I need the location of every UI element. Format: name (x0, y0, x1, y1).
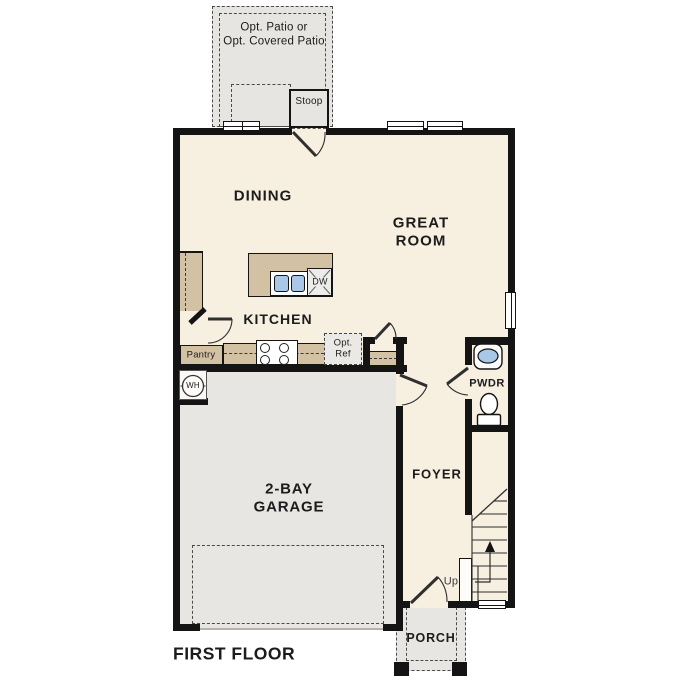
stoop-label: Stoop (295, 97, 322, 107)
toilet-icon (478, 394, 501, 426)
pantry-label: Pantry (187, 350, 216, 360)
porch-label: PORCH (406, 632, 455, 645)
dishwasher-label: DW (311, 278, 328, 287)
floor-plan: Opt. Patio or Opt. Covered Patio Stoop D… (0, 0, 687, 687)
powder-door-arc (447, 384, 468, 395)
closet-door-leaf (375, 323, 390, 339)
powder-label: PWDR (469, 379, 505, 390)
stair-break-line (472, 489, 507, 521)
closet-door-arc (390, 323, 396, 339)
pantry-door-arc (208, 319, 232, 343)
garage-entry-door-leaf (400, 375, 427, 386)
opt-ref-label-line2: Ref (335, 349, 350, 359)
powder-door-leaf (447, 368, 468, 384)
water-heater-label: WH (186, 382, 200, 390)
garage-label-line2: GARAGE (254, 500, 325, 515)
dining-label: DINING (234, 189, 293, 204)
kitchen-label: KITCHEN (243, 312, 312, 326)
patio-label-line2: Opt. Covered Patio (223, 36, 324, 48)
patio-label-line1: Opt. Patio or (240, 22, 307, 34)
opt-ref-label-line1: Opt. (334, 338, 353, 348)
up-arrow-head (485, 541, 495, 552)
garage-label-line1: 2-BAY (265, 482, 313, 497)
foyer-label: FOYER (412, 468, 462, 481)
up-label: Up (444, 577, 458, 588)
front-door-leaf (411, 577, 438, 603)
garage-entry-door-arc (402, 386, 427, 405)
great-room-label-line1: GREAT (393, 216, 449, 231)
great-room-label-line2: ROOM (396, 234, 447, 249)
powder-sink-icon (474, 344, 502, 369)
floor-title: FIRST FLOOR (173, 645, 295, 663)
staircase (472, 489, 507, 601)
stoop-door-leaf (293, 132, 316, 156)
stoop-door-arc (316, 132, 325, 156)
pantry-angled-wall (190, 309, 205, 323)
